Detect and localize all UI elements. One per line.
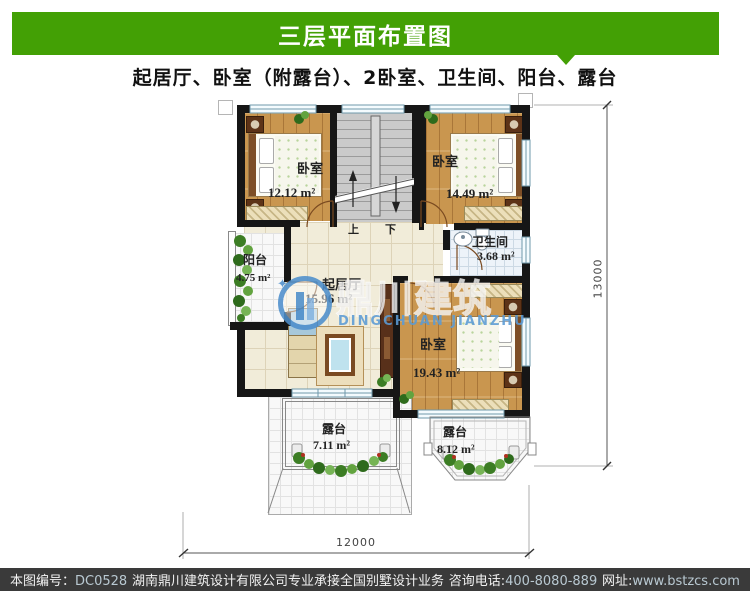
header-banner: 三层平面布置图: [12, 12, 719, 55]
watermark-brand-en: DINGCHUAN JIANZHU: [338, 314, 527, 329]
balcony-area: 4.75 m²: [236, 272, 270, 284]
closet-icon: [464, 206, 523, 221]
terrace-right-label: 露台: [443, 423, 467, 440]
phone: 咨询电话:400-8080-889: [449, 570, 597, 589]
rug-icon: [452, 399, 509, 411]
balcony-label: 阳台: [243, 251, 267, 268]
closet-icon: [246, 206, 308, 221]
nightstand-icon: [505, 116, 523, 133]
bedroom-br-area: 19.43 m²: [413, 365, 460, 381]
floor-plan-page: 三层平面布置图 起居厅、卧室（附露台）、2卧室、卫生间、阳台、露台: [0, 0, 750, 591]
room-summary-subtitle: 起居厅、卧室（附露台）、2卧室、卫生间、阳台、露台: [0, 63, 750, 90]
terrace-left-area: 7.11 m²: [313, 438, 350, 453]
stair-down-label: 下: [385, 221, 396, 237]
stairwell: [337, 112, 412, 222]
skylight-icon: [316, 326, 364, 386]
bedroom-tr-label: 卧室: [432, 151, 458, 170]
bedroom-tr-area: 14.49 m²: [446, 186, 493, 202]
company-slogan: 湖南鼎川建筑设计有限公司专业承接全国别墅设计业务: [132, 570, 444, 589]
dimension-right-value: 13000: [592, 259, 605, 299]
nightstand-icon: [246, 116, 264, 133]
watermark: ✦ 鼎川建筑 DINGCHUAN JIANZHU: [278, 272, 508, 334]
terrace-right-area: 8.12 m²: [437, 442, 475, 457]
watermark-logo-icon: ✦: [278, 276, 332, 330]
dimension-bottom-value: 12000: [336, 536, 376, 549]
bedroom-br-label: 卧室: [420, 334, 446, 353]
bedroom-tl-area: 12.12 m²: [268, 185, 315, 201]
balcony-railing: [228, 231, 236, 326]
bedroom-tl-label: 卧室: [297, 158, 323, 177]
stair-up-label: 上: [348, 221, 359, 237]
footer-bar: 本图编号：DC0528 湖南鼎川建筑设计有限公司专业承接全国别墅设计业务 咨询电…: [0, 568, 750, 591]
page-title: 三层平面布置图: [278, 17, 453, 51]
grid-marker: [518, 93, 533, 108]
terrace-left-label: 露台: [322, 420, 346, 437]
website: 网址:www.bstzcs.com: [602, 570, 740, 589]
nightstand-icon: [504, 372, 522, 388]
grid-marker: [218, 100, 233, 115]
doc-number: 本图编号：DC0528: [10, 570, 127, 589]
bathroom-area: 3.68 m²: [477, 249, 515, 264]
bathroom-label: 卫生间: [472, 233, 508, 250]
